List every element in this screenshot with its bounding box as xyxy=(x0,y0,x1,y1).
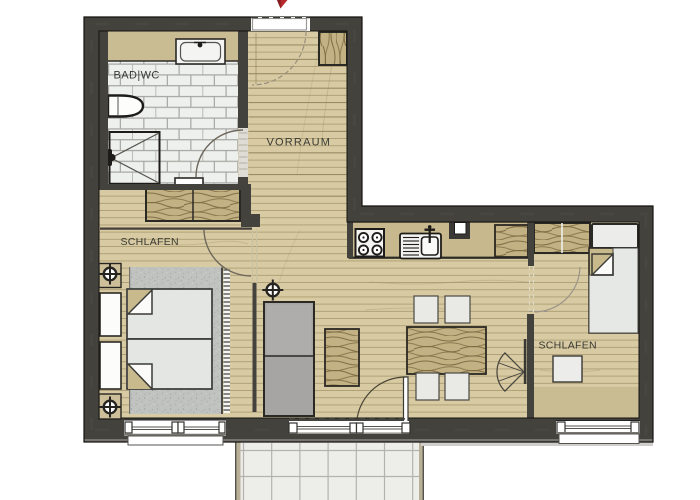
svg-text:SCHLAFEN: SCHLAFEN xyxy=(121,236,179,248)
svg-text:BAD|WC: BAD|WC xyxy=(114,70,160,82)
svg-text:VORRAUM: VORRAUM xyxy=(267,137,332,149)
svg-text:SCHLAFEN: SCHLAFEN xyxy=(539,340,597,352)
